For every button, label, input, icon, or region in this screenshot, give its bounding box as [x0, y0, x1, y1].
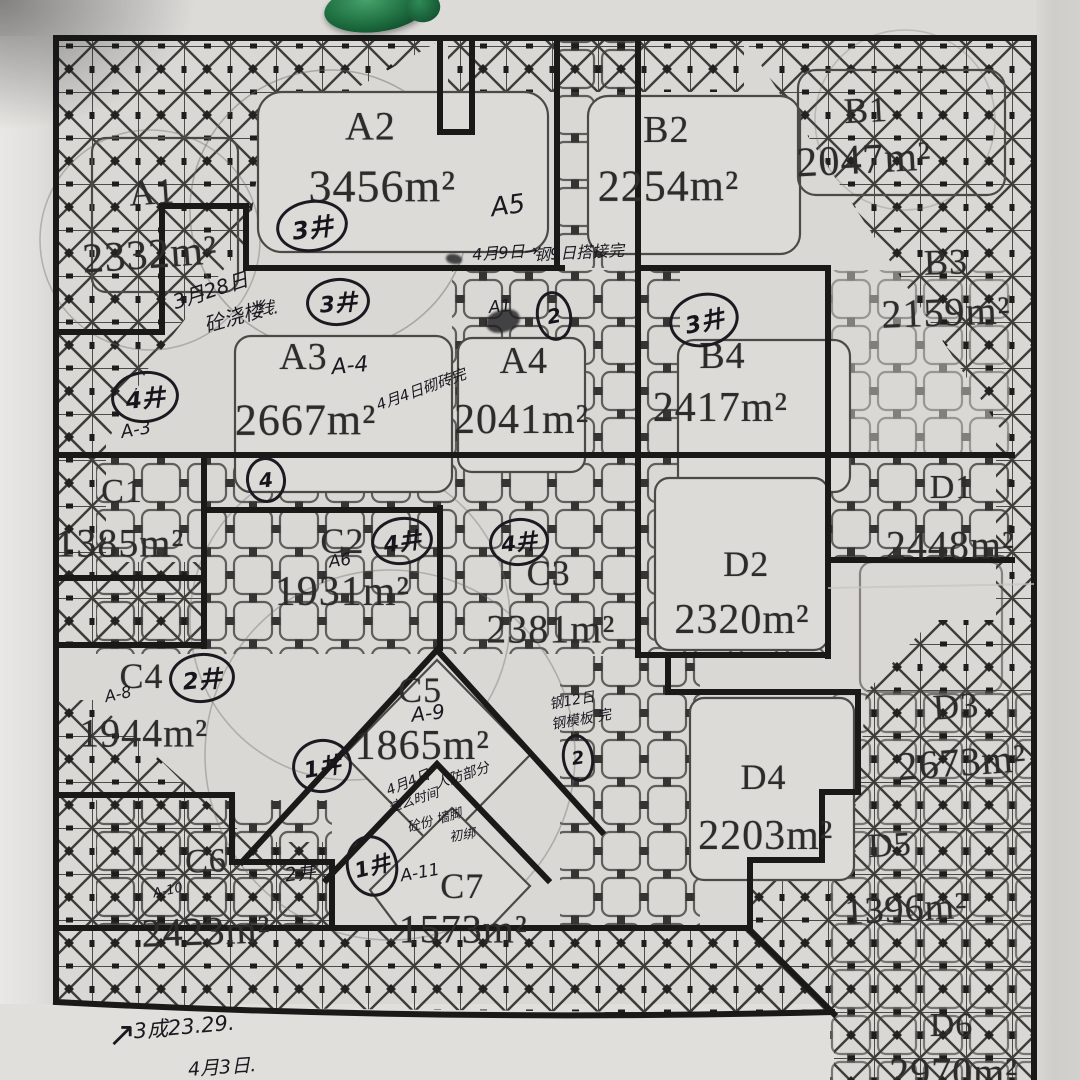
zone-area-C6: 2423m² [141, 905, 272, 956]
zone-label-D6: D6 [930, 1007, 974, 1045]
zone-area-B3: 2159m² [881, 286, 1012, 337]
zone-label-D3: D3 [931, 684, 980, 729]
handwritten-note-23: A-11 [399, 859, 441, 886]
well-marker-7: 2井 [167, 650, 237, 706]
handwritten-note-18: 初绑 [448, 822, 477, 845]
zone-label-D5: D5 [867, 826, 912, 866]
handwritten-note-10: A-3 [119, 417, 152, 443]
zone-area-D4: 2203m² [698, 812, 833, 860]
annotation-layer: A12332m²A23456m²B22254m²B12047m²B32159m²… [0, 0, 1080, 1080]
zone-area-A3: 2667m² [235, 395, 376, 446]
handwritten-note-9: 钢9日搭接完 [533, 236, 624, 265]
zone-area-B4: 2417m² [653, 384, 788, 432]
zone-area-D6: 2970m² [889, 1049, 1018, 1080]
well-marker-8: 1井 [288, 734, 356, 798]
zone-area-C1: 1385m² [55, 520, 184, 567]
handwritten-note-12: A-8 [103, 682, 133, 706]
zone-area-B2: 2254m² [598, 160, 739, 211]
zone-area-A1: 2332m² [81, 226, 219, 283]
zone-area-C2: 1931m² [275, 568, 410, 616]
zone-label-B2: B2 [643, 108, 689, 152]
site-plan-photo: A12332m²A23456m²B22254m²B12047m²B32159m²… [0, 0, 1080, 1080]
zone-area-B1: 2047m² [795, 132, 933, 187]
handwritten-note-26: 4月3日. [188, 1050, 258, 1080]
zone-label-D1: D1 [930, 469, 974, 507]
zone-area-C3: 2381m² [486, 605, 615, 652]
zone-label-A1: A1 [128, 170, 177, 215]
zone-label-B3: B3 [923, 241, 968, 285]
zone-area-D1: 2448m² [886, 522, 1015, 569]
zone-label-D2: D2 [723, 543, 769, 585]
handwritten-note-22: A-10 [152, 881, 185, 902]
zone-area-D3: 2673m² [896, 735, 1028, 791]
handwritten-note-1: A5 [489, 189, 527, 223]
handwritten-note-4: 线. [257, 293, 279, 318]
well-marker-10: 4 [243, 455, 288, 505]
well-marker-2: 3井 [304, 276, 372, 329]
zone-area-D2: 2320m² [674, 596, 809, 644]
zone-label-C7: C7 [440, 865, 484, 907]
well-marker-12: 2 [559, 732, 597, 784]
zone-label-A4: A4 [500, 339, 548, 383]
handwritten-note-21: 2井 [283, 856, 318, 887]
zone-label-C1: C1 [101, 473, 143, 511]
zone-label-A2: A2 [345, 103, 396, 150]
zone-area-D5: 1396m² [844, 884, 969, 934]
handwritten-note-13: A-9 [410, 699, 446, 726]
zone-label-C6: C6 [185, 842, 228, 881]
well-marker-9: 1井 [339, 830, 404, 903]
handwritten-note-25: 3成23.29. [132, 1007, 235, 1046]
zone-label-B1: B1 [843, 88, 889, 132]
zone-area-C7: 1573m² [399, 905, 528, 952]
handwritten-note-8: 4月9日→ [472, 236, 539, 265]
zone-label-A3: A3 [279, 335, 327, 379]
well-marker-11: 2 [532, 289, 576, 344]
zone-label-D4: D4 [741, 756, 787, 798]
handwritten-note-6: A-4 [330, 352, 369, 380]
handwritten-note-11: A6 [328, 549, 353, 572]
well-marker-5: 4井 [368, 513, 436, 569]
ink-smudge-2 [445, 253, 462, 266]
zone-area-A4: 2041m² [454, 396, 589, 444]
zone-area-C4: 1944m² [79, 710, 208, 757]
